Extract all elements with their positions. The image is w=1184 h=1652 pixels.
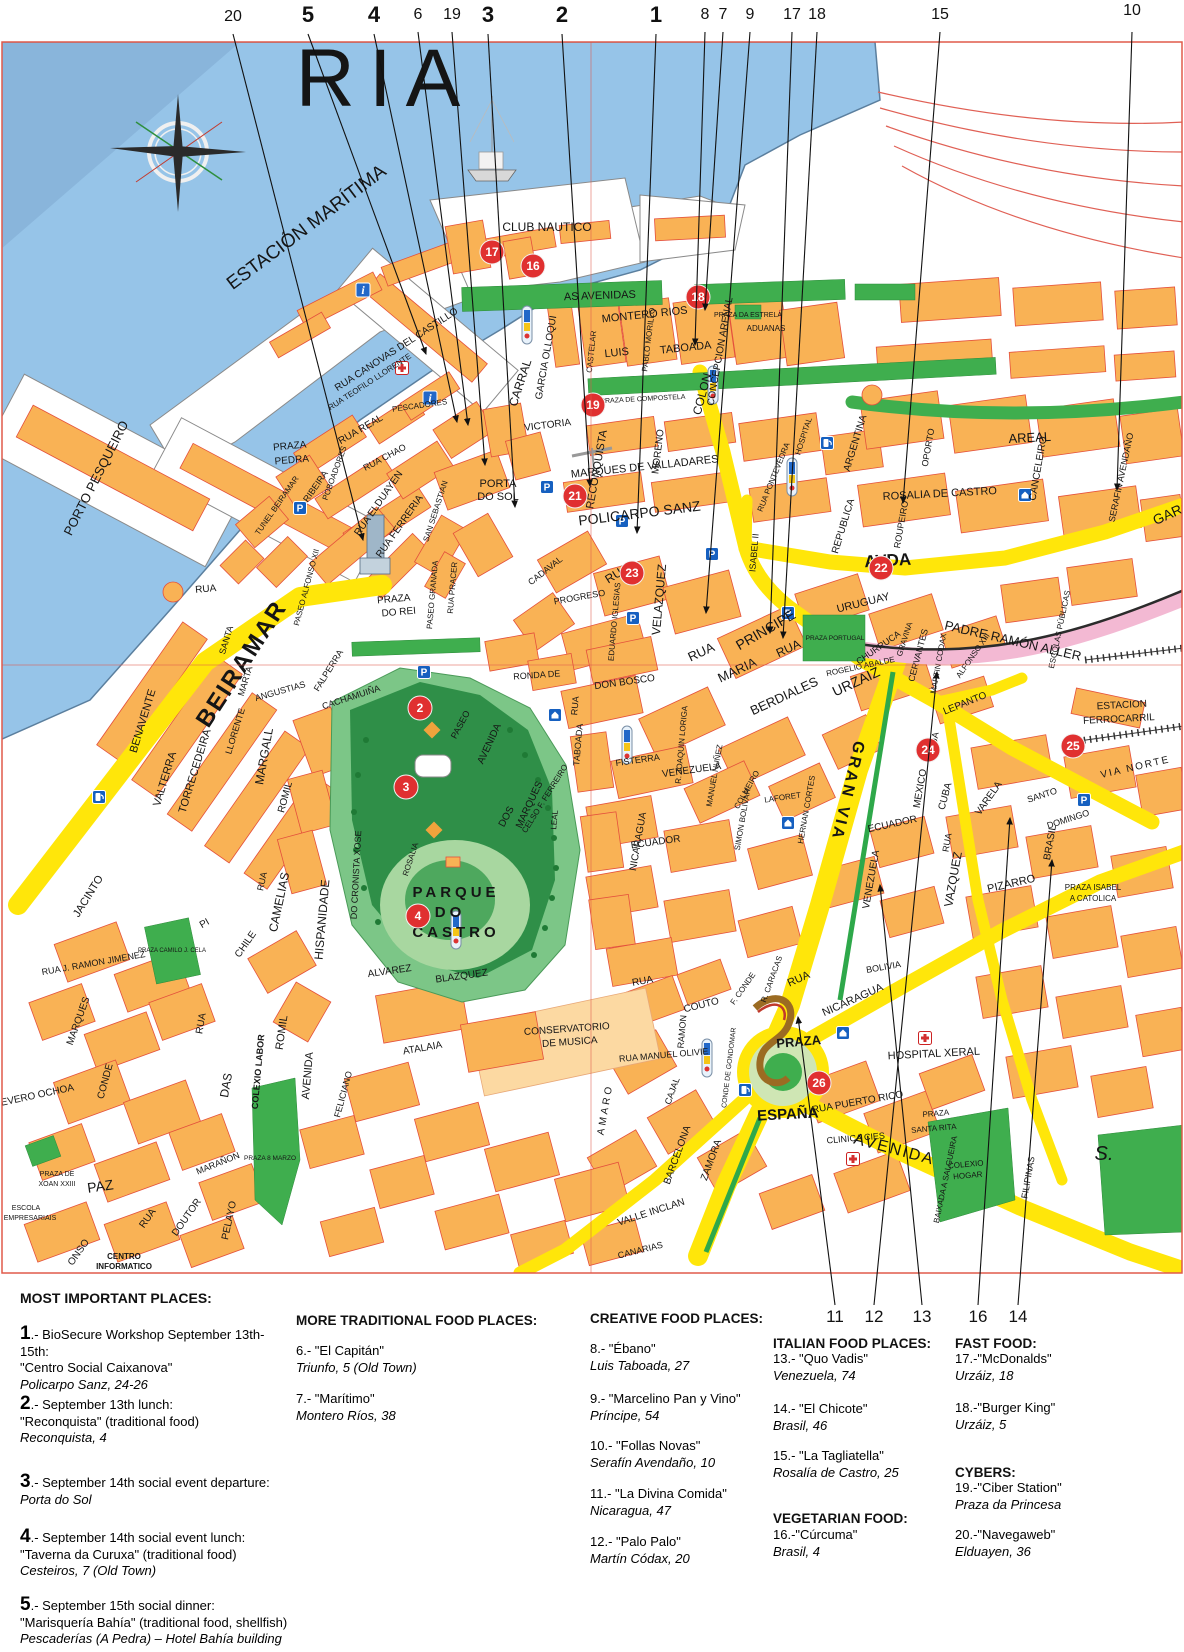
street-label: DO <box>435 904 466 921</box>
street-label: VAZQUEZ <box>941 851 964 908</box>
street-label: CANCELEIRO <box>1027 435 1049 501</box>
svg-text:3: 3 <box>403 780 410 794</box>
street-label: PRAZA CAMILO J. CELA <box>138 948 206 954</box>
street-label: PRAZA <box>922 1108 950 1119</box>
callout-9[interactable]: 9 <box>746 6 755 24</box>
callout-4[interactable]: 4 <box>368 2 380 28</box>
street-label: PRAZA 8 MARZO <box>244 1155 296 1162</box>
map-canvas: RIA <box>0 33 1184 1273</box>
ria-watermark: RIA <box>296 33 475 124</box>
callout-1[interactable]: 1 <box>650 2 662 28</box>
svg-text:4: 4 <box>415 909 422 923</box>
street-label: LEAL <box>549 809 560 830</box>
street-label: PRAZA <box>377 593 412 607</box>
parking-icon: P <box>544 483 551 494</box>
street-label: HISPANIDADE <box>312 879 333 960</box>
legend-item-17: 17.-"McDonalds"Urzáiz, 18 <box>955 1351 1184 1384</box>
street-label: BERDIALES <box>748 674 821 719</box>
parking-icon: P <box>630 614 637 625</box>
callout-16[interactable]: 16 <box>969 1307 988 1327</box>
street-label: AVENIDA <box>300 1051 316 1100</box>
street-label: ATALAIA <box>402 1040 443 1058</box>
legend-heading-fastfood: FAST FOOD: <box>955 1336 1037 1351</box>
callout-15[interactable]: 15 <box>931 6 949 24</box>
callout-2[interactable]: 2 <box>556 2 568 28</box>
map-marker[interactable]: 3 <box>394 775 418 799</box>
legend-heading-traditional: MORE TRADITIONAL FOOD PLACES: <box>296 1313 537 1328</box>
legend-item-6: 6.- "El Capitán"Triunfo, 5 (Old Town) <box>296 1343 566 1376</box>
street-label: LUIS <box>604 346 630 360</box>
street-label: JACINTO <box>71 873 106 919</box>
street-label: XOAN XXIII <box>39 1181 76 1188</box>
callout-20[interactable]: 20 <box>224 8 242 26</box>
legend-item-5: 5.- September 15th social dinner: "Maris… <box>20 1597 290 1648</box>
svg-text:22: 22 <box>874 561 888 575</box>
callout-3[interactable]: 3 <box>482 2 494 28</box>
callout-10[interactable]: 10 <box>1123 2 1141 20</box>
parking-icon: P <box>297 504 304 515</box>
fuel-icon <box>96 793 101 801</box>
street-label: VICTORIA <box>524 417 572 434</box>
legend-item-19: 19.-"Ciber Station"Praza da Princesa <box>955 1480 1184 1513</box>
map-marker[interactable]: 2 <box>408 696 432 720</box>
callout-17[interactable]: 17 <box>783 6 801 24</box>
street-label: RUA <box>195 583 217 596</box>
svg-text:19: 19 <box>586 398 600 412</box>
street-label: RAMON <box>676 1015 689 1049</box>
fuel-icon <box>824 439 829 447</box>
parking-icon: P <box>1081 796 1088 807</box>
svg-text:21: 21 <box>568 489 582 503</box>
street-label: PARQUE <box>412 884 499 901</box>
legend-heading-italian: ITALIAN FOOD PLACES: <box>773 1336 931 1351</box>
callout-19[interactable]: 19 <box>443 6 461 24</box>
legend-item-4: 4.- September 14th social event lunch: "… <box>20 1529 290 1580</box>
street-label: PI <box>198 917 212 931</box>
street-label: PRAZA PORTUGAL <box>806 635 865 642</box>
parking-icon: P <box>421 668 428 679</box>
street-label: ESCOLA <box>12 1205 41 1212</box>
roundabout <box>163 582 183 602</box>
fuel-icon <box>742 1086 747 1094</box>
map-marker[interactable]: 25 <box>1061 734 1085 758</box>
svg-text:24: 24 <box>921 743 935 757</box>
callout-14[interactable]: 14 <box>1009 1307 1028 1327</box>
street-label: AMARO <box>596 1083 616 1136</box>
callout-7[interactable]: 7 <box>719 6 728 24</box>
legend-item-2: 2.- September 13th lunch: "Reconquista" … <box>20 1396 290 1447</box>
street-label: DO REI <box>381 606 416 620</box>
callout-8[interactable]: 8 <box>701 6 710 24</box>
street-label: ADUANAS <box>747 324 786 333</box>
street-label: PORTA <box>480 478 518 490</box>
legend-item-18: 18.-"Burger King"Urzáiz, 5 <box>955 1400 1184 1433</box>
street-label: A CATOLICA <box>1070 894 1117 903</box>
svg-text:2: 2 <box>417 701 424 715</box>
street-label: BOLIVIA <box>865 959 901 975</box>
svg-text:18: 18 <box>691 290 705 304</box>
legend-heading-important: MOST IMPORTANT PLACES: <box>20 1290 212 1306</box>
street-label: PRAZA ISABEL <box>1065 883 1122 892</box>
street-label: CONDE DE GONDOMAR <box>721 1027 738 1108</box>
street-label: SANTO <box>1026 786 1058 805</box>
map-marker[interactable]: 21 <box>563 484 587 508</box>
street-label: DO SOL <box>477 491 519 503</box>
legend-heading-vegetarian: VEGETARIAN FOOD: <box>773 1511 908 1526</box>
legend-item-3: 3.- September 14th social event departur… <box>20 1474 290 1508</box>
street-label: INFORMATICO <box>96 1262 152 1271</box>
svg-text:23: 23 <box>625 566 639 580</box>
callout-12[interactable]: 12 <box>865 1307 884 1327</box>
street-label: CASTRO <box>412 924 499 941</box>
svg-text:26: 26 <box>812 1076 826 1090</box>
street-label: ANGUSTIAS <box>254 679 307 703</box>
legend-item-20: 20.-"Navegaweb"Elduayen, 36 <box>955 1527 1184 1560</box>
street-label: PRAZA DE COMPOSTELA <box>600 394 686 405</box>
street-label: AS AVENIDAS <box>564 289 636 304</box>
callout-6[interactable]: 6 <box>414 6 423 24</box>
map-marker[interactable]: 26 <box>807 1071 831 1095</box>
map-marker[interactable]: 22 <box>869 556 893 580</box>
street-label: RUA <box>569 696 581 716</box>
street-label: RUA <box>685 639 717 664</box>
svg-text:17: 17 <box>485 245 499 259</box>
legend-item-7: 7.- "Marítimo"Montero Ríos, 38 <box>296 1391 566 1424</box>
map-marker[interactable]: 4 <box>406 904 430 928</box>
street-label: CLUB NAUTICO <box>502 220 591 234</box>
legend-heading-creative: CREATIVE FOOD PLACES: <box>590 1311 763 1326</box>
street-label: RUA <box>194 1012 209 1035</box>
svg-text:16: 16 <box>526 259 540 273</box>
street-label: PRAZA DA ESTRELA <box>714 312 782 319</box>
street-label: CENTRO <box>107 1252 141 1261</box>
street-label: CUBA <box>937 781 955 811</box>
tourist-map-page: RIA <box>0 0 1184 1652</box>
street-label: DAS <box>217 1072 235 1099</box>
map-marker[interactable]: 23 <box>620 561 644 585</box>
legend-item-1: 1.- BioSecure Workshop September 13th-15… <box>20 1326 290 1393</box>
street-label: PRAZA DE <box>40 1171 75 1178</box>
callout-13[interactable]: 13 <box>913 1307 932 1327</box>
map-marker[interactable]: 16 <box>521 254 545 278</box>
legend-heading-cybers: CYBERS: <box>955 1465 1016 1480</box>
callout-5[interactable]: 5 <box>302 2 314 28</box>
svg-text:25: 25 <box>1066 739 1080 753</box>
street-label: F. CONDE <box>729 971 758 1007</box>
callout-11[interactable]: 11 <box>826 1307 844 1327</box>
street-label: EMPRESARIAIS <box>4 1215 57 1222</box>
callout-18[interactable]: 18 <box>808 6 826 24</box>
street-label: REPUBLICA <box>830 497 857 555</box>
street-label: S. <box>1095 1143 1114 1165</box>
roundabout <box>862 385 882 405</box>
tower-base <box>360 558 390 574</box>
street-label: FALPERRA <box>312 648 345 693</box>
street-label: PASEO GRANADA <box>425 559 440 629</box>
